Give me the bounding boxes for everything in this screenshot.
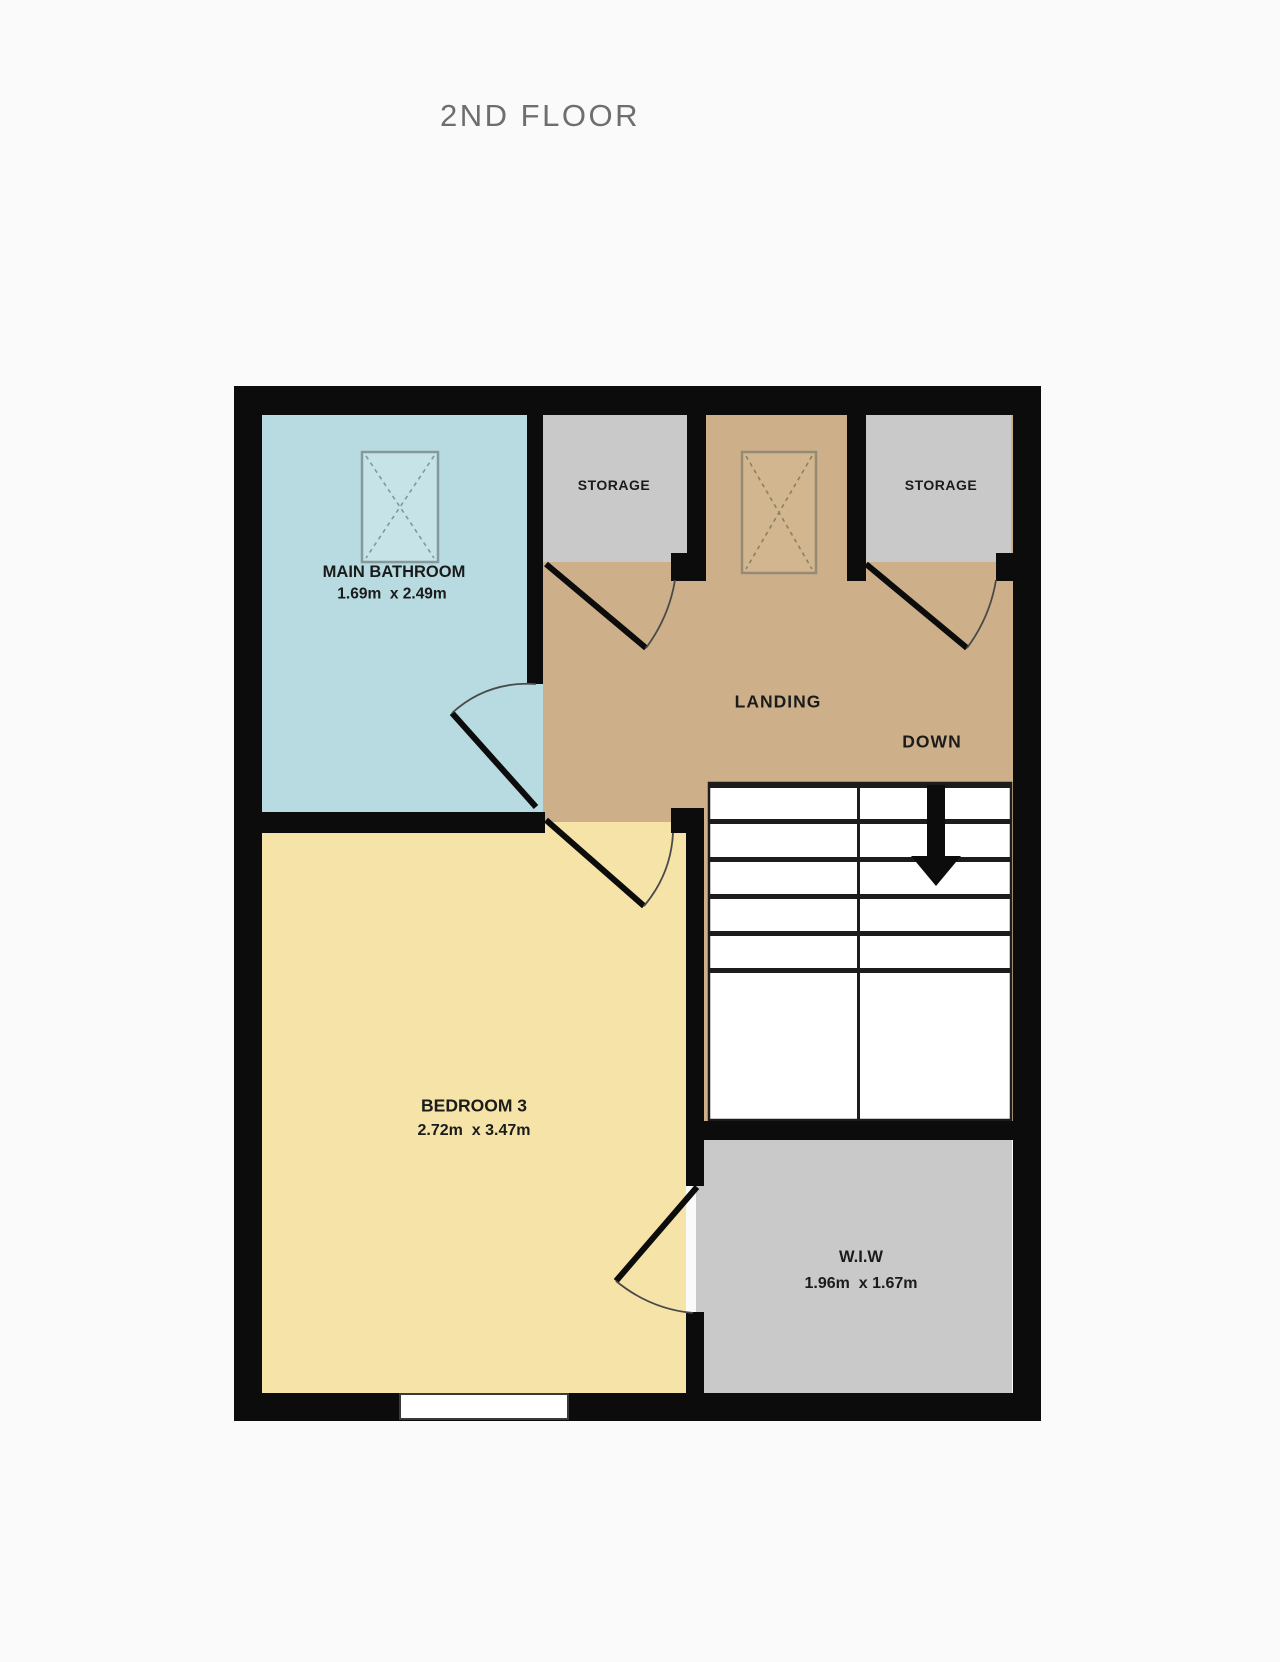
storage-right-label: STORAGE: [905, 478, 977, 492]
landing-label: LANDING: [735, 693, 822, 711]
wiw-label: W.I.W: [839, 1249, 883, 1266]
bedroom-window: [400, 1394, 568, 1419]
stairs-down-label: DOWN: [902, 733, 961, 751]
main-bathroom-label: MAIN BATHROOM: [323, 564, 466, 581]
storage-left-right-wall: [687, 414, 706, 581]
wiw-dimensions: 1.96m x 1.67m: [805, 1276, 918, 1292]
storage-left-label: STORAGE: [578, 478, 650, 492]
stairs-wiw-wall: [686, 1121, 1013, 1140]
storage-right-door-stub: [996, 553, 1013, 581]
bedroom-door-stub: [671, 808, 704, 833]
stairs-center-divider: [857, 783, 860, 1120]
bathroom-bedroom-wall: [234, 812, 545, 833]
storage-left-door-stub: [671, 553, 687, 581]
floor-plan-page: 2ND FLOOR: [0, 0, 1280, 1662]
outer-wall-bottom: [234, 1393, 1041, 1421]
closet-fixture-icon: [742, 452, 816, 573]
bedroom-3-label: BEDROOM 3: [421, 1097, 527, 1115]
outer-wall-right: [1013, 386, 1041, 1421]
bathroom-right-wall: [527, 414, 543, 684]
bedroom-3-dimensions: 2.72m x 3.47m: [418, 1123, 531, 1139]
outer-wall-left: [234, 386, 262, 1421]
bathtub-fixture-icon: [362, 452, 438, 562]
floor-plan-drawing: [0, 0, 1280, 1662]
wiw-floor: [696, 1140, 1012, 1393]
outer-wall-top: [234, 386, 1041, 415]
main-bathroom-dimensions: 1.69m x 2.49m: [337, 586, 446, 602]
storage-right-left-wall: [847, 414, 866, 581]
wiw-door-stub: [686, 1312, 704, 1393]
staircase: [709, 783, 1011, 1120]
